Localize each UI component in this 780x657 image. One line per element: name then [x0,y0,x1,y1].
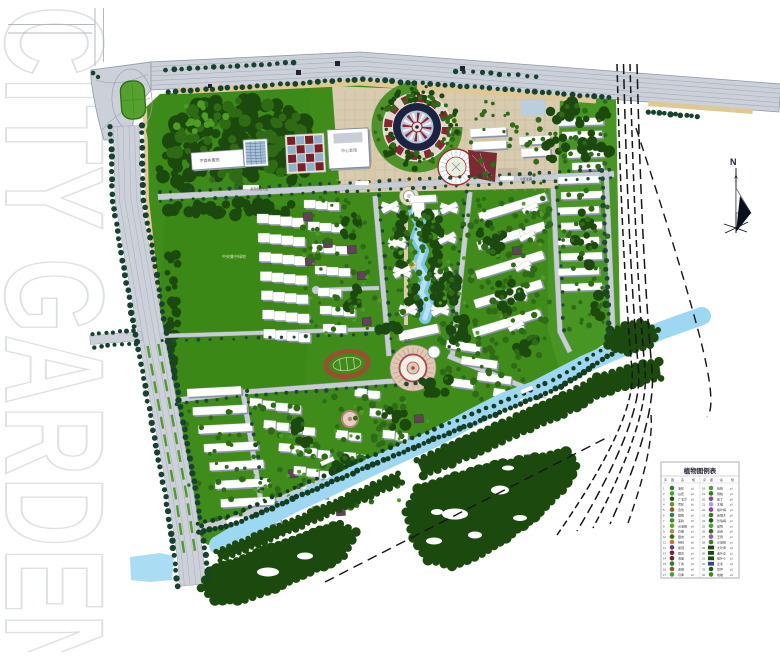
svg-text:雪松: 雪松 [678,502,684,507]
svg-text:紫薇: 紫薇 [678,545,684,550]
svg-text:32: 32 [702,562,706,566]
svg-text:木槿: 木槿 [717,502,723,507]
svg-text:中央集中绿地: 中央集中绿地 [222,253,246,259]
svg-text:月季: 月季 [678,572,684,577]
svg-text:银杏: 银杏 [678,534,684,539]
svg-text:图: 图 [710,478,713,482]
svg-text:22: 22 [702,508,706,512]
svg-text:金叶女: 金叶女 [717,550,726,555]
svg-text:白皮: 白皮 [678,491,684,496]
svg-text:栾树: 栾树 [678,518,684,523]
svg-text:23: 23 [702,514,706,518]
svg-text:29: 29 [702,546,706,550]
svg-text:小区主路: 小区主路 [520,176,532,181]
svg-text:序: 序 [703,477,706,482]
svg-text:18: 18 [702,487,706,491]
svg-text:28: 28 [702,541,706,545]
svg-text:规: 规 [731,477,734,482]
svg-text:16: 16 [663,568,667,572]
svg-text:沙地柏: 沙地柏 [717,540,726,545]
svg-text:11: 11 [663,541,666,545]
svg-text:34: 34 [702,573,706,577]
svg-text:珍珠梅: 珍珠梅 [717,518,726,523]
svg-text:序: 序 [664,477,667,482]
svg-text:草坪: 草坪 [717,567,723,572]
svg-text:广玉兰: 广玉兰 [678,496,687,501]
svg-text:19: 19 [702,492,706,496]
svg-text:白蜡: 白蜡 [678,529,684,534]
svg-text:滨河景观大道: 滨河景观大道 [250,186,268,191]
svg-text:31: 31 [702,557,706,561]
svg-text:33: 33 [702,568,706,572]
svg-text:大叶黄: 大叶黄 [717,545,726,550]
svg-text:紫荆: 紫荆 [717,523,723,528]
svg-text:丁香: 丁香 [678,561,684,566]
svg-text:植物图例表: 植物图例表 [683,466,717,475]
svg-text:金银木: 金银木 [717,513,726,518]
svg-text:会所: 会所 [404,338,412,343]
svg-text:25: 25 [702,524,706,528]
svg-text:迎春: 迎春 [717,529,723,534]
svg-text:中心会馆: 中心会馆 [341,146,357,153]
svg-text:15: 15 [663,562,667,566]
svg-text:油松: 油松 [678,486,684,491]
svg-text:地被: 地被 [717,572,723,577]
svg-text:桧柏: 桧柏 [717,486,723,491]
svg-text:国槐: 国槐 [678,513,684,518]
svg-text:14: 14 [663,557,667,561]
svg-text:侧柏: 侧柏 [717,491,723,496]
svg-text:柿树: 柿树 [678,540,684,545]
svg-text:24: 24 [702,519,706,523]
svg-text:21: 21 [702,503,706,507]
svg-text:玉簪: 玉簪 [717,534,723,539]
svg-text:图: 图 [671,478,674,482]
svg-text:10: 10 [663,535,667,539]
svg-text:规: 规 [692,477,695,482]
svg-text:26: 26 [702,530,706,534]
svg-text:紫丁: 紫丁 [717,496,723,501]
svg-text:合欢: 合欢 [678,507,684,512]
svg-text:紫叶小: 紫叶小 [717,556,726,561]
svg-text:12: 12 [663,546,667,550]
svg-text:20: 20 [702,497,706,501]
svg-text:17: 17 [663,573,667,577]
svg-text:麦冬: 麦冬 [717,561,723,566]
svg-text:樱花: 樱花 [678,550,684,555]
svg-text:海棠: 海棠 [678,556,684,561]
svg-text:连翘: 连翘 [678,567,684,572]
svg-text:30: 30 [702,551,706,555]
svg-text:N: N [730,157,737,167]
svg-text:27: 27 [702,535,706,539]
svg-text:榆叶梅: 榆叶梅 [717,507,726,512]
svg-text:名: 名 [681,477,684,482]
svg-text:13: 13 [663,551,667,555]
svg-text:名: 名 [720,477,723,482]
svg-text:元宝枫: 元宝枫 [678,523,687,528]
